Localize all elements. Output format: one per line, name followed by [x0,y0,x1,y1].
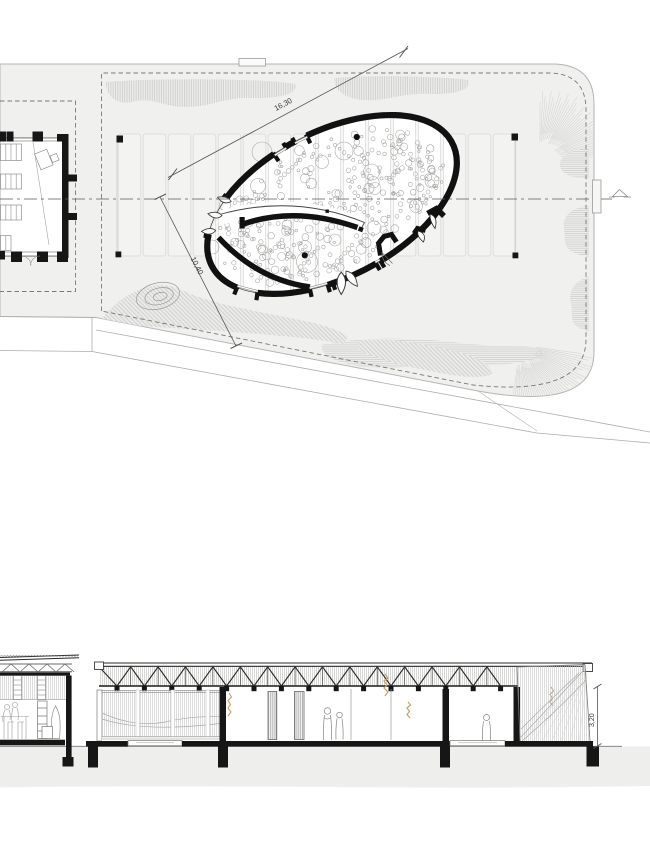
svg-text:3,20: 3,20 [589,713,596,727]
